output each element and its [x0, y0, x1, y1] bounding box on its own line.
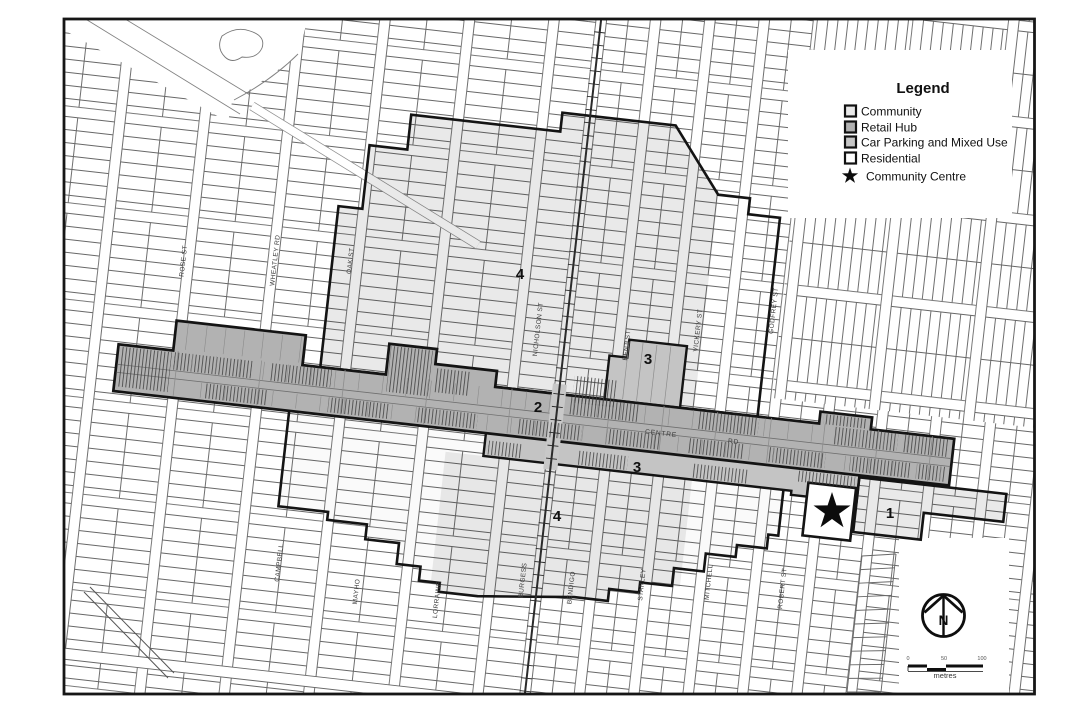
- svg-text:metres: metres: [934, 671, 957, 680]
- svg-text:3: 3: [633, 459, 641, 476]
- svg-text:4: 4: [516, 266, 525, 283]
- svg-text:4: 4: [553, 508, 562, 525]
- svg-text:0: 0: [906, 656, 909, 662]
- svg-text:Retail Hub: Retail Hub: [861, 120, 917, 134]
- svg-text:Community Centre: Community Centre: [866, 169, 966, 183]
- svg-text:Residential: Residential: [861, 151, 920, 165]
- svg-text:1: 1: [886, 505, 894, 522]
- svg-text:N: N: [939, 613, 949, 628]
- svg-text:50: 50: [941, 656, 947, 662]
- svg-text:3: 3: [644, 351, 652, 368]
- svg-text:Legend: Legend: [896, 80, 949, 97]
- svg-text:100: 100: [977, 656, 986, 662]
- svg-text:Car Parking and Mixed Use: Car Parking and Mixed Use: [861, 135, 1008, 149]
- svg-text:2: 2: [534, 399, 542, 416]
- svg-text:RD: RD: [728, 438, 740, 446]
- svg-text:Community: Community: [861, 104, 922, 118]
